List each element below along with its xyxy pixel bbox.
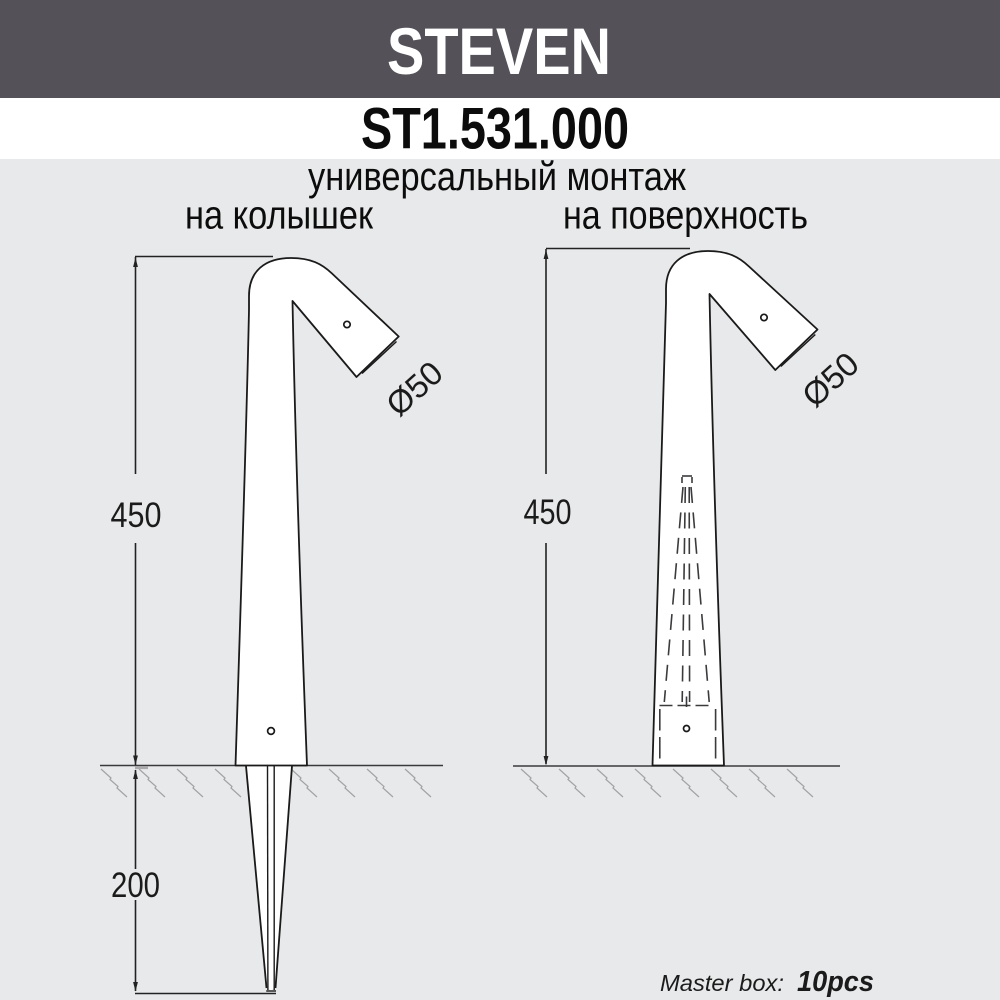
svg-text:450: 450 xyxy=(524,492,572,532)
svg-text:Master box:: Master box: xyxy=(660,970,784,996)
svg-text:на поверхность: на поверхность xyxy=(563,194,808,238)
svg-text:универсальный монтаж: универсальный монтаж xyxy=(308,155,686,199)
svg-text:STEVEN: STEVEN xyxy=(387,14,611,88)
svg-text:ST1.531.000: ST1.531.000 xyxy=(361,97,629,162)
svg-text:10pcs: 10pcs xyxy=(797,966,874,998)
svg-text:на колышек: на колышек xyxy=(185,194,373,238)
svg-text:200: 200 xyxy=(111,865,160,905)
svg-text:450: 450 xyxy=(111,495,162,535)
